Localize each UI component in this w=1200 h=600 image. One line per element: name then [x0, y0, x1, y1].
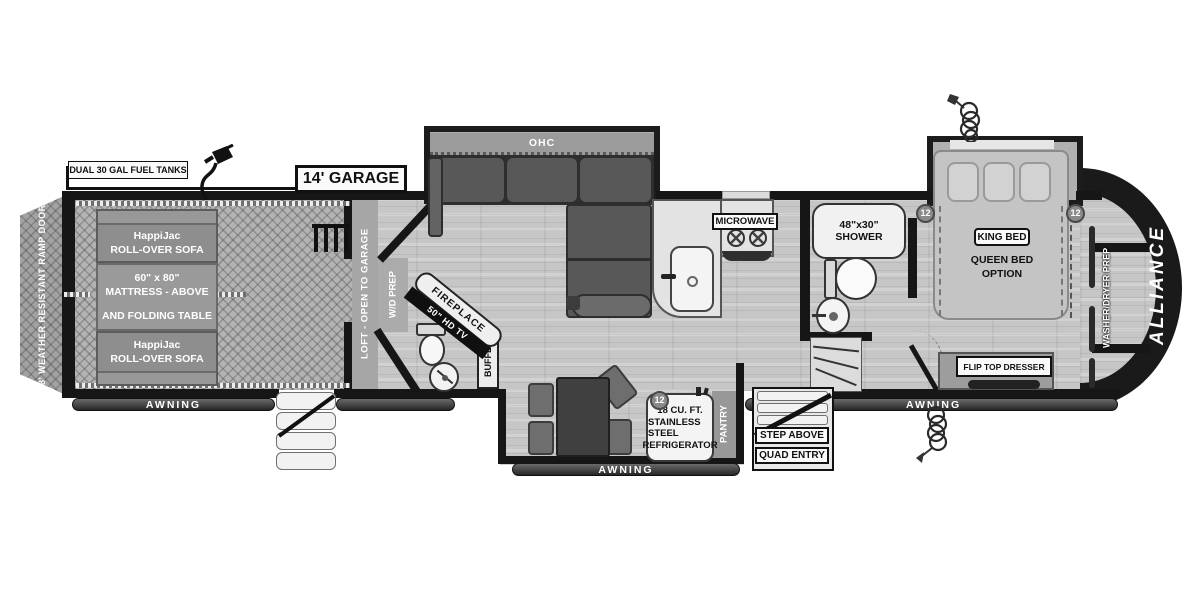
bottom-wall-bedroom [830, 389, 1120, 398]
badge-12-left: 12 [916, 204, 935, 223]
washer-dryer-label: WASHER/DRYER PREP [1102, 248, 1112, 348]
sofa-left-armrest [428, 157, 443, 237]
sofa-rear-label-1: HappiJac [98, 339, 216, 351]
rollover-sofa-front: HappiJac ROLL-OVER SOFA [96, 209, 218, 263]
pillow [983, 162, 1015, 202]
awning-left-label: AWNING [146, 399, 201, 411]
sofa-rear-label-2: ROLL-OVER SOFA [98, 353, 216, 365]
bath-sink [816, 297, 850, 334]
sofa-front-label-1: HappiJac [98, 230, 216, 242]
range-hood [722, 251, 772, 261]
washer-dryer-prep-area: WASHER/DRYER PREP [1098, 246, 1115, 350]
shower-label-2: SHOWER [835, 231, 882, 243]
floorplan: 8' WEATHER RESISTANT RAMP DOOR HappiJac … [0, 0, 1200, 600]
quad-entry-text: QUAD ENTRY [759, 450, 825, 461]
fuel-tanks-text: DUAL 30 GAL FUEL TANKS [69, 165, 186, 175]
ramp-door-label: 8' WEATHER RESISTANT RAMP DOOR [20, 196, 64, 394]
brand-text: ALLIANCE [1147, 225, 1169, 345]
wardrobe-rod [1089, 306, 1095, 352]
dinette-chair [528, 383, 554, 417]
wall-window-kitchen [722, 191, 770, 199]
ohc-cabinet: OHC [430, 133, 654, 155]
bath-left-wall [800, 199, 810, 341]
garage-tiedown-track-top [76, 201, 350, 206]
ramp-door: 8' WEATHER RESISTANT RAMP DOOR [20, 196, 64, 394]
garage-bunk-platform: 60" x 80" MATTRESS - ABOVE AND FOLDING T… [96, 263, 218, 331]
king-bed-text: KING BED [978, 232, 1027, 243]
pantry-wall [736, 363, 744, 463]
awning-center-label: AWNING [598, 464, 653, 476]
wd-prep-label: W/D PREP [378, 258, 408, 332]
sofa-back-cushions [430, 155, 654, 205]
garage-loft-wall-lower [344, 322, 352, 390]
bottom-wall-garage [62, 389, 279, 398]
bed-slide-seal-line [1070, 206, 1072, 318]
bunk-label-3: AND FOLDING TABLE [98, 310, 216, 322]
sofa-cushion [580, 158, 651, 202]
bath-bedroom-wall [908, 218, 917, 298]
half-bath-sink [429, 362, 459, 392]
bunk-label-2: MATTRESS - ABOVE [98, 286, 216, 298]
ohc-label: OHC [529, 137, 555, 149]
cooktop-burner-right [749, 229, 767, 247]
bottom-wall-mid [334, 389, 506, 398]
shower-48x30: 48"x30" SHOWER [812, 203, 906, 259]
dinette-chair [528, 421, 554, 455]
fridge-label-3: REFRIGERATOR [642, 440, 717, 451]
garage-tiedown-right [216, 292, 246, 297]
sofa-front-label-2: ROLL-OVER SOFA [98, 244, 216, 256]
microwave-label: MICROWAVE [712, 213, 778, 230]
quad-entry-label: QUAD ENTRY [755, 447, 829, 464]
sofa-cushion [507, 158, 578, 202]
awning-left: AWNING [72, 398, 275, 411]
coiled-hose-icon [912, 406, 956, 464]
queen-option-label-2: OPTION [958, 268, 1046, 280]
quad-entry-steps: STEP ABOVE QUAD ENTRY [752, 387, 834, 471]
loft-ladder-icon [312, 224, 350, 256]
wardrobe-rod [1089, 226, 1095, 288]
step-above-text: STEP ABOVE [760, 430, 824, 441]
king-bed-label: KING BED [974, 228, 1030, 246]
microwave-text: MICROWAVE [716, 216, 775, 227]
step-tread [276, 452, 336, 470]
badge-12-fridge: 12 [650, 391, 669, 410]
fridge-hinge [696, 387, 701, 396]
dinette-slide-left-wall [498, 389, 506, 463]
sofa-recliner-knob [566, 296, 580, 310]
garage-tiedown-left [64, 292, 90, 297]
fridge-label-2: STAINLESS STEEL [648, 417, 712, 439]
fuel-pump-icon [186, 144, 234, 200]
loft-label: LOFT - OPEN TO GARAGE [352, 199, 378, 389]
kitchen-sink [670, 246, 714, 312]
step-above-label: STEP ABOVE [755, 427, 829, 444]
dresser-label: FLIP TOP DRESSER [956, 356, 1052, 377]
wd-prep-closet: W/D PREP [378, 258, 408, 332]
bath-toilet-bowl [835, 257, 877, 300]
dinette-table [556, 377, 610, 457]
wardrobe-rod [1089, 358, 1095, 388]
queen-option-label-1: QUEEN BED [958, 254, 1046, 266]
sofa-cushion [433, 158, 504, 202]
loft-strip: LOFT - OPEN TO GARAGE [352, 199, 378, 389]
pillow [1019, 162, 1051, 202]
top-wall-front [1076, 191, 1102, 200]
badge-12-right: 12 [1066, 204, 1085, 223]
dresser-tv [968, 380, 1040, 389]
pillow [947, 162, 979, 202]
dresser-text: FLIP TOP DRESSER [963, 362, 1044, 372]
garage-dimension-text: 14' GARAGE [303, 170, 399, 188]
awning-left-extension [336, 398, 455, 411]
sofa-cushion-strip [98, 371, 216, 384]
fuel-tanks-label: DUAL 30 GAL FUEL TANKS [68, 161, 188, 179]
sofa-cushion-strip [98, 211, 216, 225]
brand-logo: ALLIANCE [1145, 185, 1171, 385]
bedroom-steps [810, 337, 862, 392]
rollover-sofa-rear: HappiJac ROLL-OVER SOFA [96, 331, 218, 386]
kitchen-faucet [661, 274, 676, 279]
coiled-hose-icon [944, 92, 988, 142]
bunk-label-1: 60" x 80" [98, 272, 216, 284]
sofa-chaise-armrest [572, 294, 652, 318]
cooktop-burner-left [727, 229, 745, 247]
awning-center: AWNING [512, 463, 740, 476]
garage-dimension-label: 14' GARAGE [295, 165, 407, 193]
step-tread [276, 432, 336, 450]
shower-label-1: 48"x30" [839, 219, 878, 231]
